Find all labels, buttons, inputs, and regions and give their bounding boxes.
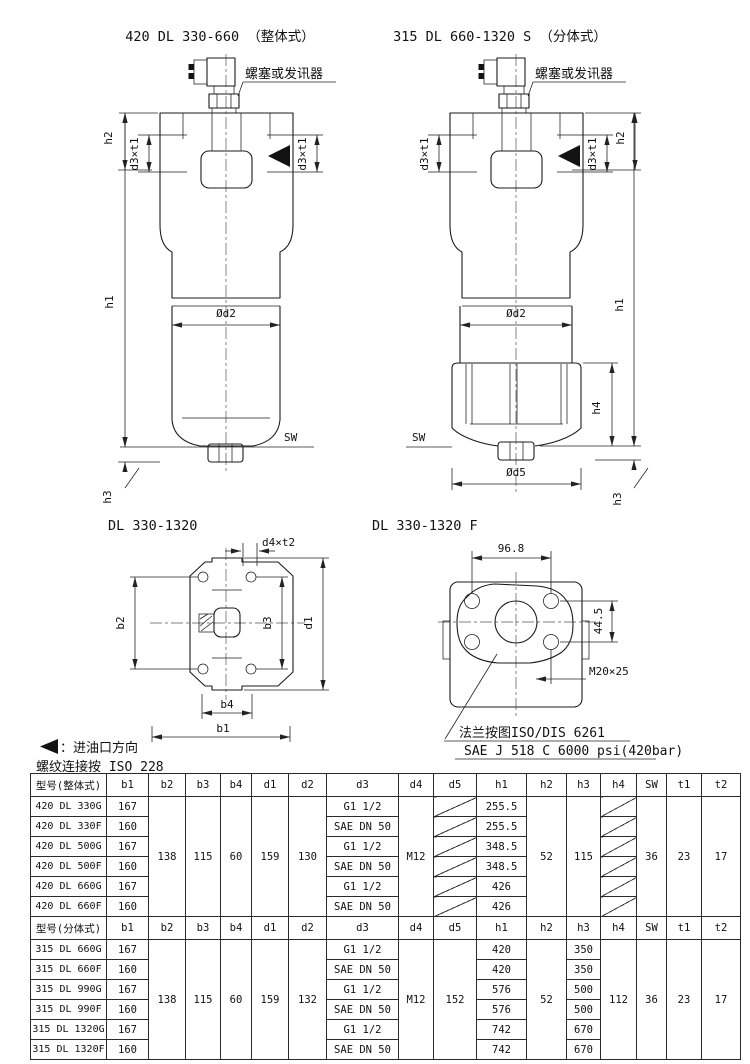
table-row: 420 DL 500F 160 SAE DN 50 348.5 [31,857,741,877]
inlet-direction-note: ：进油口方向 [60,740,138,756]
cell-na [601,797,637,817]
table-row: 420 DL 330F 160 SAE DN 50 255.5 [31,817,741,837]
dim-d4t2-label: d4×t2 [262,536,295,549]
flange-note-2: SAE J 518 C 6000 psi(420bar) [464,744,683,759]
cell-na [601,837,637,857]
table-row: 420 DL 330G 167 138 115 60 159 130 G1 1/… [31,797,741,817]
catalog-page: 420 DL 330-660 （整体式） 螺塞或发讯器 [0,0,750,1064]
integral-title: 420 DL 330-660 （整体式） [125,29,314,45]
flange-face-title: DL 330-1320 F [372,518,478,534]
dim-h2-label: h2 [102,131,115,144]
dim-od2-label: Ød2 [216,307,236,320]
technical-drawing: 420 DL 330-660 （整体式） 螺塞或发讯器 [0,0,750,772]
table-header-integral: 型号(整体式) b1 b2 b3 b4 d1 d2 d3 d4 d5 h1 h2… [31,774,741,797]
cell-na [434,857,477,877]
mounting-plate [190,558,293,690]
inlet-direction-icon [268,145,290,167]
pressure-sensor [479,58,530,113]
cell-na [434,897,477,917]
dim-d3t1-left-label: d3×t1 [418,137,431,170]
dim-h1-label: h1 [103,295,116,308]
cell-na [434,877,477,897]
flange-note-1: 法兰按图ISO/DIS 6261 [459,726,605,741]
pressure-sensor [189,58,240,113]
integral-view: 420 DL 330-660 （整体式） 螺塞或发讯器 [101,29,336,504]
dim-b1-label: b1 [216,722,229,735]
cell-na [434,817,477,837]
thread-standard-note: 螺纹连接按 ISO 228 [36,759,164,772]
dim-h4-label: h4 [590,401,603,415]
col-model: 型号(分体式) [31,917,107,940]
sw-label: SW [412,431,426,444]
split-view: 315 DL 660-1320 S （分体式） 螺塞或发讯器 [393,29,648,506]
table-header-split: 型号(分体式) b1 b2 b3 b4 d1 d2 d3 d4 d5 h1 h2… [31,917,741,940]
table-row: 420 DL 660F 160 SAE DN 50 426 [31,897,741,917]
port-face-dimensions: d4×t2 b2 b3 d1 b4 b1 [114,536,329,742]
col-model: 型号(整体式) [31,774,107,797]
cell-na [601,817,637,837]
dim-d3t1-right-label: d3×t1 [296,137,309,170]
dim-b4-label: b4 [220,698,234,711]
dimension-table: 型号(整体式) b1 b2 b3 b4 d1 d2 d3 d4 d5 h1 h2… [30,773,741,1060]
dim-h2-label: h2 [614,131,627,144]
dim-od5-label: Ød5 [506,466,526,479]
dim-b2-label: b2 [114,616,127,629]
table-row: 420 DL 500G 167 G1 1/2 348.5 [31,837,741,857]
dim-d3t1-right-label: d3×t1 [586,137,599,170]
dim-flange-height-label: 44.5 [592,608,605,635]
dim-flange-thread-label: M20×25 [589,665,629,678]
table-row: 315 DL 660G 167 138 115 60 159 132 G1 1/… [31,940,741,960]
inlet-direction-icon [558,145,580,167]
cell-na [434,837,477,857]
split-title: 315 DL 660-1320 S （分体式） [393,29,607,45]
dim-od2-label: Ød2 [506,307,526,320]
dim-d3t1-left-label: d3×t1 [128,137,141,170]
inlet-direction-icon [40,739,58,754]
dim-h3-label: h3 [611,492,624,505]
cell-na [601,857,637,877]
dim-flange-width-label: 96.8 [498,542,525,555]
sw-label: SW [284,431,298,444]
cell-na [601,897,637,917]
plug-callout-right: 螺塞或发讯器 [535,66,613,82]
table-row: 420 DL 660G 167 G1 1/2 426 [31,877,741,897]
cell-na [601,877,637,897]
dim-b3-label: b3 [261,616,274,629]
port-face-view: DL 330-1320 d4×t2 b2 [108,518,329,742]
dim-d1-label: d1 [302,616,315,629]
footnotes: ：进油口方向 螺纹连接按 ISO 228 [36,739,164,772]
dim-h1-label: h1 [613,298,626,311]
dim-h3-label: h3 [101,490,114,503]
filter-bowl-ribbed [452,363,581,460]
port-face-title: DL 330-1320 [108,518,197,534]
cell-na [434,797,477,817]
plug-callout-left: 螺塞或发讯器 [245,66,323,82]
flange-face-view: DL 330-1320 F 96.8 44.5 M20×25 法兰按图ISO/ [372,518,683,759]
